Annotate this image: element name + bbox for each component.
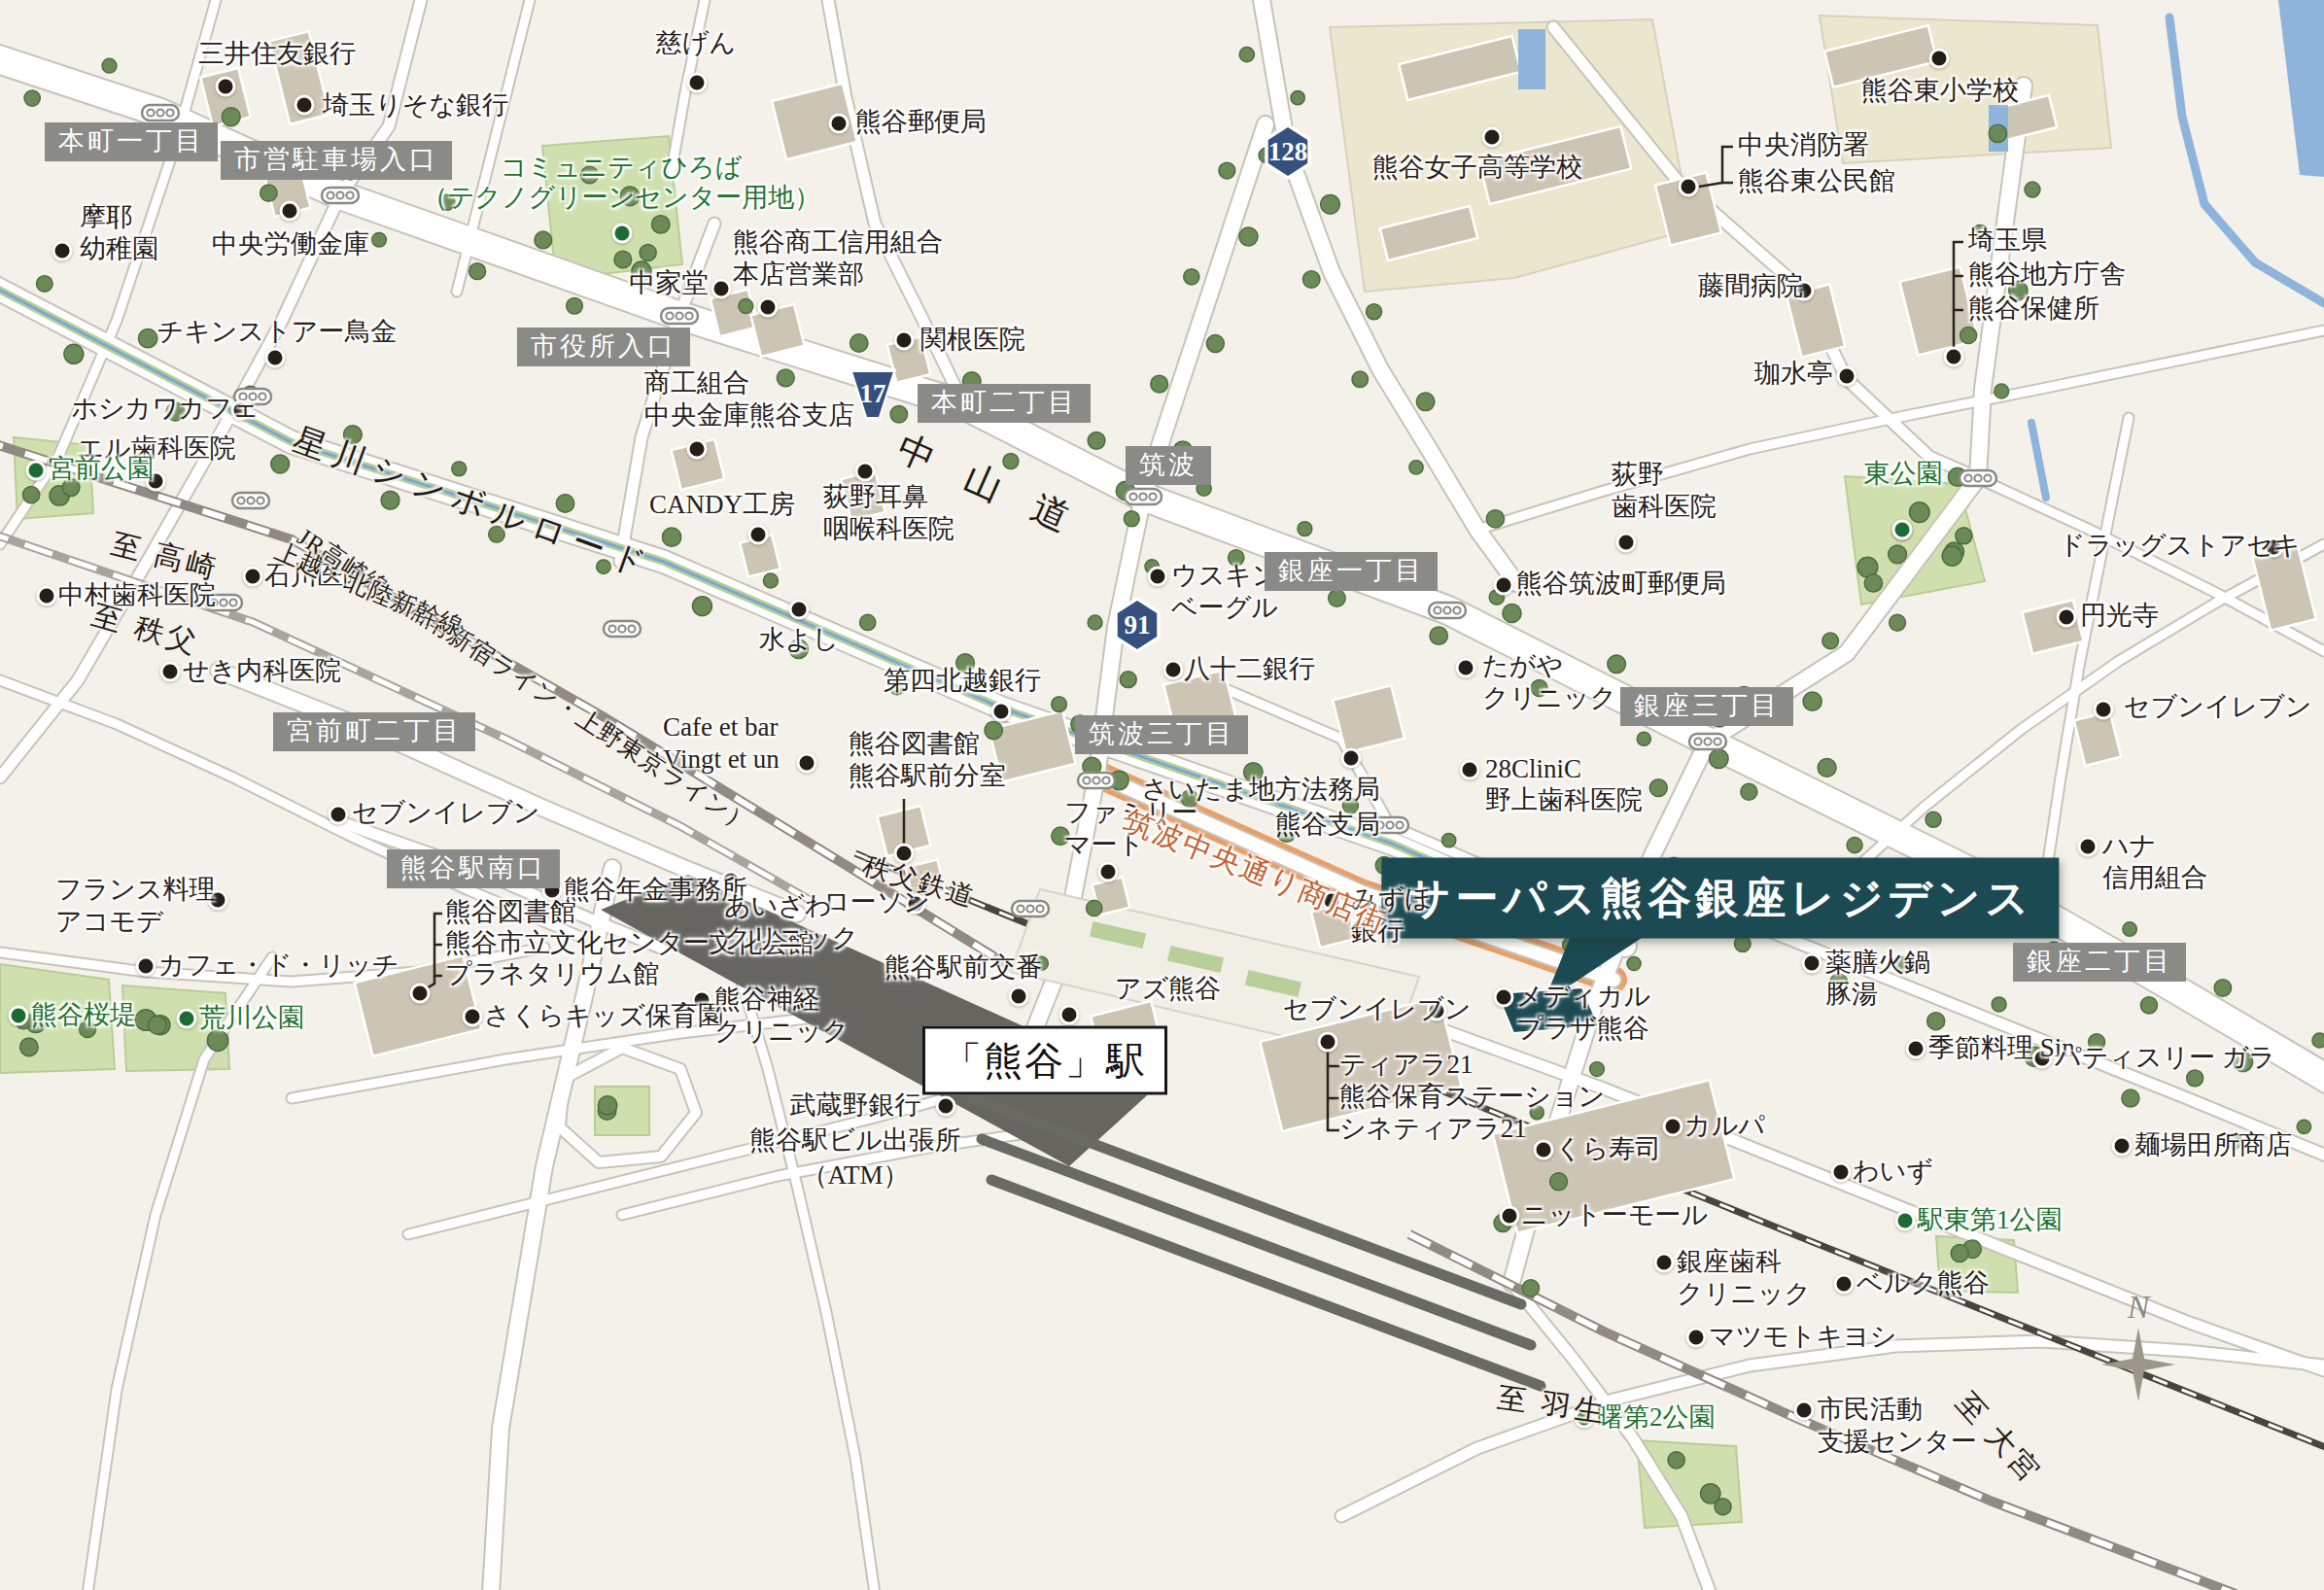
dot-bunka-center: [410, 984, 431, 1004]
shield-face: 91: [1115, 601, 1160, 649]
dot-yakuzen-hinabe: [1802, 953, 1822, 974]
poi-line: マツモトキヨシ: [1709, 1321, 1896, 1353]
poi-sekine-clinic: 関根医院: [920, 324, 1025, 356]
poi-kumagaya-girls-hs: 熊谷女子高等学校: [1372, 152, 1582, 184]
poi-seven-eleven-ne: セブンイレブン: [2124, 691, 2311, 723]
poi-hana-shinyo: ハナ信用組合: [2102, 830, 2207, 894]
poi-line: たがや: [1482, 650, 1616, 682]
poi-line: セブンイレブン: [1283, 993, 1471, 1025]
poi-line: 28CliniC: [1485, 753, 1643, 784]
dot-chuo-rodo-kinko: [280, 201, 300, 222]
dot-sekine-clinic: [894, 330, 915, 351]
route-number: 91: [1125, 610, 1151, 640]
poi-medical-plaza: メディカルプラザ熊谷: [1516, 981, 1650, 1045]
route-shield-17: 17: [847, 365, 899, 422]
dot-mitsui-sumitomo-bank: [216, 77, 236, 97]
poi-higashi-elementary: 熊谷東小学校: [1861, 75, 2019, 107]
poi-kumagaya-sakuratsutsumi: 熊谷桜堤: [31, 999, 136, 1031]
poi-line: 慈げん: [656, 27, 736, 59]
dot-kasuitei: [1837, 366, 1857, 387]
poi-line: 中央金庫熊谷支店: [644, 399, 854, 432]
poi-prefectural-office: 埼玉県熊谷地方庁舎熊谷保健所: [1968, 225, 2126, 327]
dot-medical-plaza: [1494, 987, 1514, 1008]
dot-tagaya-clinic: [1456, 658, 1476, 678]
route-shield-128: 128: [1262, 123, 1314, 180]
area-badge-shiyakusho-iriguchi: 市役所入口: [517, 328, 690, 366]
property-label: サーパス熊谷銀座レジデンス: [1381, 858, 2059, 939]
poi-maya-kindergarten: 摩耶幼稚園: [80, 201, 158, 265]
poi-ekihigashi-park: 駅東第1公園: [1918, 1204, 2063, 1236]
poi-line: ニットーモール: [1521, 1199, 1708, 1231]
area-badge-ginza-1chome: 銀座一丁目: [1265, 552, 1438, 591]
dot-shoko-chuokinko: [687, 439, 708, 460]
area-badge-tsukuba-3chome: 筑波三丁目: [1075, 715, 1248, 754]
dot-seki-naika: [160, 662, 181, 682]
poi-line: 薬膳火鍋: [1825, 947, 1930, 979]
poi-line: 武蔵野銀行: [749, 1089, 960, 1124]
poi-line: チキンストアー鳥金: [157, 316, 398, 348]
poi-line: 荒川公園: [199, 1002, 304, 1034]
dot-ogino-jibi: [855, 462, 876, 482]
poi-line: クリニック: [714, 1016, 849, 1048]
poi-line: 埼玉県: [1968, 225, 2126, 259]
poi-kasuitei: 珈水亭: [1754, 358, 1833, 390]
route-shield-91: 91: [1111, 597, 1163, 653]
area-badge-kumagayaeki-minamiguchi: 熊谷駅南口: [387, 849, 560, 888]
poi-line: 埼玉りそな銀行: [323, 89, 508, 121]
area-badge-ginza-2chome: 銀座二丁目: [2013, 943, 2186, 982]
poi-line: （ATM）: [749, 1159, 960, 1194]
poi-line: クリニック: [1482, 682, 1616, 714]
poi-line: 熊谷駅前分室: [849, 760, 1006, 792]
poi-line: わいず: [1853, 1156, 1933, 1188]
dot-cafe-et-bar: [797, 753, 817, 774]
dot-shimin-katsudo: [1794, 1400, 1815, 1421]
poi-matsumoto-kiyoshi: マツモトキヨシ: [1709, 1321, 1896, 1353]
area-badge-shiei-chushajo-iriguchi: 市営駐車場入口: [221, 141, 452, 180]
poi-line: カフェ・ド・リッチ: [158, 950, 399, 982]
dot-fire-station: [1679, 177, 1699, 197]
dot-ekihigashi-park: [1895, 1211, 1916, 1231]
poi-line: 幼稚園: [80, 233, 158, 265]
area-badge-honcho-2chome: 本町二丁目: [918, 384, 1091, 423]
poi-line: 八十二銀行: [1184, 653, 1315, 685]
park-dot-1: [1892, 520, 1913, 540]
dot-legal-affairs: [1341, 748, 1362, 769]
poi-karupa: カルパ: [1684, 1110, 1765, 1142]
poi-line: あいざわ: [724, 890, 858, 922]
poi-fujima-hospital: 藤間病院: [1698, 270, 1803, 302]
poi-line: カルパ: [1684, 1110, 1765, 1142]
dot-waizu: [1831, 1162, 1852, 1183]
dot-kisetsu-ryori-sin: [1906, 1039, 1926, 1059]
dot-seven-eleven-sw: [329, 805, 349, 825]
dot-hachijuni-bank: [1163, 660, 1184, 680]
map-labels: サーパス熊谷銀座レジデンス 「熊谷」駅 N 三井住友銀行埼玉りそな銀行慈げん熊谷…: [0, 0, 2324, 1590]
poi-nitto-mall: ニットーモール: [1521, 1199, 1708, 1231]
dot-usuking-bagel: [1148, 567, 1168, 587]
dot-seven-eleven-ne: [2094, 700, 2114, 720]
poi-kisetsu-ryori-sin: 季節料理 Sin: [1928, 1032, 2075, 1064]
park-dot-0: [612, 224, 633, 244]
poi-ginza-dental: 銀座歯科クリニック: [1677, 1246, 1811, 1310]
shield-face: 128: [1266, 127, 1310, 176]
dot-karupa: [1663, 1117, 1683, 1137]
poi-line: セブンイレブン: [352, 797, 539, 829]
poi-line: 麺場田所商店: [2134, 1129, 2292, 1161]
poi-enkoji: 円光寺: [2080, 600, 2159, 632]
poi-line: ドラッグストアセキ: [2059, 530, 2301, 562]
poi-kumagaya-post-office: 熊谷郵便局: [855, 106, 987, 138]
dot-arakawa-park: [177, 1009, 197, 1029]
poi-line: 野上歯科医院: [1485, 784, 1643, 815]
poi-line: 熊谷桜堤: [31, 999, 136, 1031]
poi-kura-sushi: くら寿司: [1555, 1133, 1661, 1165]
dot-prefectural-office: [1944, 347, 1964, 367]
poi-community-hiroba: コミュニティひろば（テクノグリーンセンター用地）: [422, 152, 821, 212]
poi-line: 熊谷保育ステーション: [1339, 1081, 1605, 1113]
poi-daishi-hokuetsu-bank: 第四北越銀行: [884, 665, 1041, 697]
poi-yakuzen-hinabe: 薬膳火鍋豚湯: [1825, 947, 1930, 1011]
poi-line: 荻野: [1612, 459, 1717, 491]
poi-nakakado: 中家堂: [630, 267, 709, 299]
poi-line: 本店営業部: [733, 259, 943, 291]
dot-beruku-kumagaya: [1834, 1274, 1855, 1295]
poi-line: アズ熊谷: [1115, 973, 1221, 1005]
poi-line: さくらキッズ保育園: [484, 1000, 724, 1032]
poi-line: 円光寺: [2080, 600, 2159, 632]
compass-rose: N: [2101, 1289, 2175, 1401]
poi-line: クリニック: [724, 922, 858, 954]
poi-line: 第四北越銀行: [884, 665, 1041, 697]
poi-tsukubacho-post: 熊谷筑波町郵便局: [1516, 568, 1726, 600]
poi-line: 関根医院: [920, 324, 1025, 356]
poi-line: さいたま地方法務局: [1141, 774, 1380, 809]
route-number: 128: [1268, 137, 1308, 167]
compass-north-label: N: [2101, 1289, 2175, 1326]
poi-line: 銀座歯科: [1677, 1246, 1811, 1278]
poi-shoko-shinyo-kumiai: 熊谷商工信用組合本店営業部: [733, 226, 943, 291]
poi-line: プラザ熊谷: [1516, 1013, 1650, 1045]
area-badge-tsukuba: 筑波: [1126, 446, 1211, 485]
poi-az-kumagaya: アズ熊谷: [1115, 973, 1221, 1005]
poi-line: 信用組合: [2102, 862, 2207, 894]
dot-hana-shinyo: [2078, 837, 2099, 857]
poi-line: セブンイレブン: [2124, 691, 2311, 723]
poi-sakura-kids: さくらキッズ保育園: [484, 1000, 724, 1032]
poi-line: 商工組合: [644, 367, 854, 399]
poi-line: Cafe et bar: [663, 711, 780, 743]
poi-line: 宮前公園: [49, 453, 154, 485]
dot-cafe-de-rich: [136, 956, 156, 977]
poi-line: ベルク熊谷: [1856, 1267, 1990, 1299]
poi-library-ekimae: 熊谷図書館熊谷駅前分室: [849, 728, 1006, 792]
dot-saitama-resona-bank: [295, 95, 315, 116]
poi-seven-eleven-sw: セブンイレブン: [352, 797, 539, 829]
poi-line: クリニック: [1677, 1278, 1811, 1310]
shield-border: 91: [1111, 597, 1163, 653]
poi-line: 咽喉科医院: [823, 513, 954, 545]
poi-menba-tadokoro: 麺場田所商店: [2134, 1129, 2292, 1161]
poi-ogino-dental: 荻野歯科医院: [1612, 459, 1717, 523]
shield-border: 17: [847, 365, 899, 422]
dot-az-kumagaya: [1059, 1005, 1080, 1025]
route-number: 17: [860, 379, 886, 409]
poi-cafe-de-rich: カフェ・ド・リッチ: [158, 950, 399, 982]
poi-line: 熊谷商工信用組合: [733, 226, 943, 259]
poi-france-accommode: フランス料理アコモデ: [55, 874, 216, 938]
poi-line: 熊谷東小学校: [1861, 75, 2019, 107]
poi-clinic-28: 28CliniC野上歯科医院: [1485, 753, 1643, 815]
shield-border: 128: [1262, 123, 1314, 180]
poi-jigen: 慈げん: [656, 27, 736, 59]
poi-line: 熊谷駅前交番: [885, 951, 1042, 984]
dot-kumagaya-post-office: [829, 114, 850, 134]
area-badge-miyamaecho-2chome: 宮前町二丁目: [273, 712, 475, 751]
poi-line: 中家堂: [630, 267, 709, 299]
dot-ogino-dental: [1616, 533, 1637, 553]
poi-line: アコモデ: [55, 906, 216, 938]
poi-candy-kobo: CANDY工房: [649, 489, 795, 521]
poi-line: 熊谷駅ビル出張所: [749, 1124, 960, 1159]
dot-jigen: [687, 73, 708, 93]
poi-line: 熊谷筑波町郵便局: [1516, 568, 1726, 600]
dot-tsukubacho-post: [1494, 575, 1514, 596]
poi-mitsui-sumitomo-bank: 三井住友銀行: [198, 38, 356, 70]
poi-line: 珈水亭: [1754, 358, 1833, 390]
poi-miyamae-park: 宮前公園: [49, 453, 154, 485]
dot-nakakado: [711, 279, 732, 299]
poi-line: 駅東第1公園: [1918, 1204, 2063, 1236]
poi-line: ベーグル: [1171, 592, 1305, 624]
poi-waizu: わいず: [1853, 1156, 1933, 1188]
poi-line: フランス料理: [55, 874, 216, 906]
poi-line: くら寿司: [1555, 1133, 1661, 1165]
poi-hachijuni-bank: 八十二銀行: [1184, 653, 1315, 685]
poi-musashino-bank: 武蔵野銀行熊谷駅ビル出張所（ATM）: [749, 1089, 960, 1194]
poi-beruku-kumagaya: ベルク熊谷: [1856, 1267, 1990, 1299]
dot-nitto-mall: [1500, 1206, 1520, 1227]
poi-line: 支援センター: [1818, 1426, 1977, 1458]
dot-tiara21: [1318, 1032, 1338, 1053]
poi-line: コミュニティひろば: [422, 152, 821, 182]
dot-clinic-28: [1460, 760, 1480, 780]
dot-ginza-dental: [1654, 1253, 1675, 1273]
dot-nakamura-dental: [37, 586, 57, 606]
poi-line: 豚湯: [1825, 979, 1930, 1011]
compass-star-icon: [2101, 1328, 2175, 1401]
poi-chicken-store-torikin: チキンストアー鳥金: [157, 316, 398, 348]
poi-ekimae-koban: 熊谷駅前交番: [885, 951, 1042, 984]
poi-line: 摩耶: [80, 201, 158, 233]
poi-ogino-jibi: 荻野耳鼻咽喉科医院: [823, 481, 954, 545]
poi-line: 熊谷保健所: [1968, 293, 2126, 327]
poi-line: 熊谷地方庁舎: [1968, 259, 2126, 293]
poi-line: 熊谷郵便局: [855, 106, 987, 138]
poi-hoshikawa-cafe: ホシカワカフェ: [71, 393, 259, 425]
dot-higashi-elementary: [1929, 49, 1950, 69]
poi-line: 季節料理 Sin: [1928, 1032, 2075, 1064]
poi-line: ホシカワカフェ: [71, 393, 259, 425]
poi-line: 水よし: [759, 624, 839, 656]
area-badge-honcho-1chome: 本町一丁目: [45, 122, 218, 161]
dot-enkoji: [2057, 607, 2077, 628]
poi-seven-eleven-east: セブンイレブン: [1283, 993, 1471, 1025]
poi-line: 熊谷女子高等学校: [1372, 152, 1582, 184]
poi-saitama-resona-bank: 埼玉りそな銀行: [323, 89, 508, 121]
dot-candy-kobo: [748, 525, 769, 545]
dot-shoko-shinyo-kumiai: [758, 297, 779, 318]
poi-mizuyoshi: 水よし: [759, 624, 839, 656]
area-badge-ginza-3chome: 銀座三丁目: [1620, 687, 1793, 726]
poi-seki-naika: せき内科医院: [183, 655, 341, 687]
dot-ishikawa-clinic: [243, 567, 263, 587]
poi-line: 曙第2公園: [1597, 1401, 1716, 1434]
shield-face: 17: [850, 369, 895, 418]
poi-aizawa-clinic: あいざわクリニック: [724, 890, 858, 954]
poi-line: 中央消防署: [1738, 129, 1895, 165]
poi-line: 三井住友銀行: [198, 38, 356, 70]
dot-maya-kindergarten: [52, 241, 73, 261]
poi-line: 藤間病院: [1698, 270, 1803, 302]
dot-ekimae-koban: [1009, 986, 1029, 1007]
poi-line: 歯科医院: [1612, 491, 1717, 523]
poi-line: 中央労働金庫: [212, 228, 369, 260]
poi-line: ティアラ21: [1339, 1049, 1605, 1081]
dot-chicken-store-torikin: [265, 348, 286, 368]
poi-line: メディカル: [1516, 981, 1650, 1013]
poi-shoko-chuokinko: 商工組合中央金庫熊谷支店: [644, 367, 854, 432]
dot-sakura-kids: [463, 1007, 483, 1027]
dot-kumagaya-girls-hs: [1482, 127, 1503, 148]
poi-arakawa-park: 荒川公園: [199, 1002, 304, 1034]
direction-to-hanyu: 至 羽生: [1495, 1378, 1610, 1433]
dot-mizuyoshi: [789, 600, 810, 620]
dot-miyamae-park: [26, 461, 47, 481]
poi-higashi-park: 東公園: [1864, 458, 1943, 490]
poi-akebono-park: 曙第2公園: [1597, 1401, 1716, 1434]
dot-kumagaya-sakuratsutsumi: [9, 1006, 29, 1026]
station-name-label: 「熊谷」駅: [922, 1026, 1167, 1095]
poi-line: 熊谷図書館: [849, 728, 1006, 760]
poi-tiara21: ティアラ21熊谷保育ステーションシネティアラ21: [1339, 1049, 1605, 1145]
dot-matsumoto-kiyoshi: [1686, 1328, 1707, 1348]
poi-tagaya-clinic: たがやクリニック: [1482, 650, 1616, 714]
poi-line: ハナ: [2102, 830, 2207, 862]
poi-line: せき内科医院: [183, 655, 341, 687]
poi-fire-station: 中央消防署熊谷東公民館: [1738, 129, 1895, 201]
poi-line: パティスリー ガラ: [2055, 1042, 2275, 1074]
poi-chuo-rodo-kinko: 中央労働金庫: [212, 228, 369, 260]
poi-line: 東公園: [1864, 458, 1943, 490]
poi-drugstore-seki: ドラッグストアセキ: [2059, 530, 2301, 562]
poi-line: CANDY工房: [649, 489, 795, 521]
poi-patisserie-gala: パティスリー ガラ: [2055, 1042, 2275, 1074]
poi-kumagaya-shinkei: 熊谷神経クリニック: [714, 984, 849, 1048]
dot-menba-tadokoro: [2112, 1136, 2133, 1157]
map-canvas: サーパス熊谷銀座レジデンス 「熊谷」駅 N 三井住友銀行埼玉りそな銀行慈げん熊谷…: [0, 0, 2324, 1590]
dot-daishi-hokuetsu-bank: [991, 702, 1012, 722]
dot-family-mart: [1098, 862, 1119, 882]
poi-line: 熊谷神経: [714, 984, 849, 1016]
poi-line: （テクノグリーンセンター用地）: [422, 182, 821, 212]
poi-line: 熊谷東公民館: [1738, 165, 1895, 201]
